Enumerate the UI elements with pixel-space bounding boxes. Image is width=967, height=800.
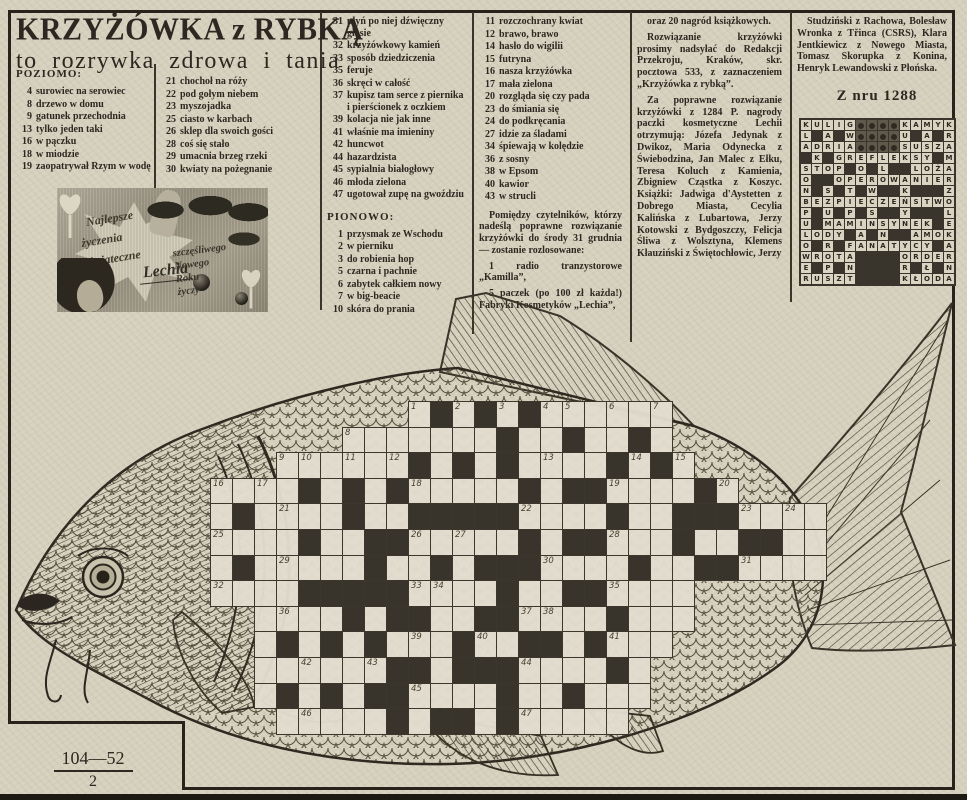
solved-cell-letter: Z: [944, 186, 954, 196]
grid-cell: [628, 478, 651, 505]
grid-cell: [584, 555, 607, 582]
solved-cell-black: [812, 263, 822, 273]
grid-cell-black: [562, 529, 585, 556]
solved-cell-letter: E: [856, 197, 866, 207]
solved-cell-letter: W: [845, 131, 855, 141]
grid-cell-number: 25: [213, 530, 224, 540]
grid-cell: [672, 478, 695, 505]
solved-cell-letter: M: [944, 153, 954, 163]
solved-cell-letter: A: [944, 274, 954, 284]
solved-cell-letter: A: [922, 131, 932, 141]
grid-cell-black: [364, 580, 387, 607]
grid-cell-number: 21: [279, 504, 290, 514]
grid-cell: [430, 427, 453, 454]
grid-cell: [606, 427, 629, 454]
grid-cell-number: 17: [257, 479, 268, 489]
grid-cell-black: [540, 631, 563, 658]
grid-cell: 14: [628, 452, 651, 479]
grid-cell-black: [364, 555, 387, 582]
grid-cell: 26: [408, 529, 431, 556]
solved-cell-black: [911, 208, 921, 218]
solved-cell-letter: A: [823, 131, 833, 141]
grid-cell: [298, 683, 321, 710]
grid-cell: [430, 657, 453, 684]
solved-cell-black: [867, 263, 877, 273]
grid-cell-number: 15: [675, 453, 686, 463]
grid-cell-black: [232, 555, 255, 582]
solved-cell-letter: A: [878, 241, 888, 251]
grid-cell-black: [760, 529, 783, 556]
grid-cell: [650, 478, 673, 505]
grid-cell: [584, 657, 607, 684]
solved-cell-black: [867, 252, 877, 262]
grid-cell: [320, 708, 343, 735]
solved-cell-letter: D: [933, 274, 943, 284]
grid-cell-black: [342, 580, 365, 607]
solved-cell-letter: U: [900, 131, 910, 141]
solved-cell-letter: K: [900, 153, 910, 163]
solved-cell-black: [922, 208, 932, 218]
grid-cell: [562, 708, 585, 735]
solved-cell-black: [856, 263, 866, 273]
solved-cell-letter: S: [867, 208, 877, 218]
solved-cell-black: [834, 208, 844, 218]
grid-cell-number: 23: [741, 504, 752, 514]
grid-cell-number: 32: [213, 581, 224, 591]
solved-cell-letter: N: [801, 186, 811, 196]
solved-cell-letter: U: [911, 142, 921, 152]
grid-cell-number: 45: [411, 684, 422, 694]
solved-cell-black: [878, 274, 888, 284]
solved-cell-black: [933, 153, 943, 163]
solved-cell-letter: E: [856, 175, 866, 185]
solved-cell-black: [933, 241, 943, 251]
solved-cell-letter: R: [823, 241, 833, 251]
grid-cell: [562, 503, 585, 530]
grid-cell: [276, 708, 299, 735]
solved-cell-black: [911, 186, 921, 196]
grid-cell: [584, 606, 607, 633]
grid-cell: 8: [342, 427, 365, 454]
solved-cell-letter: R: [911, 252, 921, 262]
solved-cell-letter: E: [801, 263, 811, 273]
solved-cell-letter: O: [823, 252, 833, 262]
grid-cell: [540, 683, 563, 710]
solved-cell-letter: L: [944, 208, 954, 218]
solved-cell-letter: U: [823, 208, 833, 218]
grid-cell-number: 40: [477, 632, 488, 642]
grid-cell: 18: [408, 478, 431, 505]
solved-cell-black: [856, 186, 866, 196]
grid-cell-number: 5: [565, 402, 570, 412]
grid-cell: [298, 631, 321, 658]
solved-cell-letter: F: [845, 241, 855, 251]
solved-cell-letter: S: [823, 274, 833, 284]
grid-cell: [496, 529, 519, 556]
solved-cell-letter: R: [812, 252, 822, 262]
solved-cell-letter: E: [889, 153, 899, 163]
grid-cell: 40: [474, 631, 497, 658]
solved-cell-photo: [878, 120, 888, 130]
solved-cell-letter: A: [944, 142, 954, 152]
grid-cell: 47: [518, 708, 541, 735]
grid-cell: [584, 452, 607, 479]
grid-cell-black: [672, 529, 695, 556]
grid-cell-number: 13: [543, 453, 554, 463]
grid-cell-number: 42: [301, 658, 312, 668]
solved-cell-letter: Ż: [933, 164, 943, 174]
solved-cell-black: [856, 274, 866, 284]
grid-cell: [320, 606, 343, 633]
grid-cell: [320, 452, 343, 479]
grid-cell: 46: [298, 708, 321, 735]
grid-cell: [430, 606, 453, 633]
solved-cell-letter: T: [845, 186, 855, 196]
grid-cell: [210, 555, 233, 582]
solved-cell-letter: E: [933, 175, 943, 185]
grid-cell: 17: [254, 478, 277, 505]
grid-cell: 35: [606, 580, 629, 607]
grid-cell-number: 10: [301, 453, 312, 463]
solved-cell-black: [889, 186, 899, 196]
solved-cell-letter: O: [856, 164, 866, 174]
grid-cell: [474, 580, 497, 607]
grid-cell-black: [496, 503, 519, 530]
grid-cell: [254, 555, 277, 582]
solved-cell-letter: Y: [889, 219, 899, 229]
grid-cell: [782, 529, 805, 556]
grid-cell-black: [496, 683, 519, 710]
grid-cell: [474, 452, 497, 479]
grid-cell: [210, 503, 233, 530]
solved-cell-letter: R: [867, 175, 877, 185]
solved-cell-letter: A: [834, 219, 844, 229]
grid-cell-black: [408, 503, 431, 530]
solved-cell-photo: [889, 142, 899, 152]
solved-cell-letter: N: [867, 219, 877, 229]
solved-cell-letter: L: [801, 131, 811, 141]
grid-cell-black: [672, 503, 695, 530]
solved-cell-black: [867, 230, 877, 240]
grid-cell: 24: [782, 503, 805, 530]
solved-cell-letter: A: [845, 142, 855, 152]
solved-cell-letter: W: [801, 252, 811, 262]
grid-cell: 43: [364, 657, 387, 684]
grid-cell-black: [320, 683, 343, 710]
grid-cell: [540, 478, 563, 505]
grid-cell: [562, 606, 585, 633]
grid-cell: 20: [716, 478, 739, 505]
solved-cell-letter: B: [801, 197, 811, 207]
solved-cell-letter: E: [812, 197, 822, 207]
grid-cell-black: [606, 657, 629, 684]
grid-cell: [496, 478, 519, 505]
solved-cell-letter: R: [944, 252, 954, 262]
grid-cell: [540, 708, 563, 735]
grid-cell: 19: [606, 478, 629, 505]
grid-cell: 32: [210, 580, 233, 607]
grid-cell: [562, 631, 585, 658]
grid-cell-black: [694, 555, 717, 582]
solved-cell-letter: M: [922, 120, 932, 130]
solved-cell-photo: [867, 142, 877, 152]
grid-cell: [232, 478, 255, 505]
grid-cell: [254, 631, 277, 658]
grid-cell: [518, 427, 541, 454]
grid-cell: [650, 631, 673, 658]
grid-cell: 4: [540, 401, 563, 428]
grid-cell: 9: [276, 452, 299, 479]
grid-cell: [584, 503, 607, 530]
grid-cell-black: [496, 657, 519, 684]
solved-cell-black: [933, 208, 943, 218]
solved-cell-letter: Z: [933, 142, 943, 152]
solved-cell-black: [878, 252, 888, 262]
solved-cell-letter: F: [867, 153, 877, 163]
solved-cell-black: [867, 164, 877, 174]
solved-cell-letter: W: [889, 175, 899, 185]
grid-cell: [804, 503, 827, 530]
grid-cell-number: 46: [301, 709, 312, 719]
grid-cell: [606, 683, 629, 710]
solved-cell-black: [845, 164, 855, 174]
grid-cell: [254, 657, 277, 684]
solved-cell-letter: E: [911, 219, 921, 229]
grid-cell: [562, 657, 585, 684]
grid-cell: [496, 631, 519, 658]
grid-cell-number: 18: [411, 479, 422, 489]
grid-cell: 27: [452, 529, 475, 556]
grid-cell: [606, 555, 629, 582]
solved-cell-black: [834, 131, 844, 141]
grid-cell-black: [562, 683, 585, 710]
grid-cell: [474, 478, 497, 505]
grid-cell-black: [408, 452, 431, 479]
grid-cell-black: [738, 529, 761, 556]
grid-cell-black: [650, 452, 673, 479]
solved-cell-letter: S: [878, 219, 888, 229]
grid-cell-number: 41: [609, 632, 620, 642]
grid-cell: [628, 580, 651, 607]
grid-cell: 29: [276, 555, 299, 582]
grid-cell: 31: [738, 555, 761, 582]
grid-cell-black: [342, 478, 365, 505]
grid-cell: 28: [606, 529, 629, 556]
solved-cell-black: [834, 241, 844, 251]
grid-cell: [342, 657, 365, 684]
solved-cell-letter: S: [823, 186, 833, 196]
solved-cell-black: [933, 186, 943, 196]
solved-cell-letter: W: [933, 197, 943, 207]
grid-cell: [474, 683, 497, 710]
solved-cell-letter: A: [900, 175, 910, 185]
solved-cell-letter: L: [911, 164, 921, 174]
grid-cell: [452, 580, 475, 607]
grid-cell-number: 33: [411, 581, 422, 591]
grid-cell: [540, 529, 563, 556]
solved-cell-letter: K: [900, 274, 910, 284]
solved-cell-letter: D: [823, 230, 833, 240]
grid-cell: [452, 478, 475, 505]
grid-cell-black: [562, 427, 585, 454]
grid-cell: [364, 708, 387, 735]
solved-cell-letter: P: [834, 197, 844, 207]
solved-cell-letter: L: [823, 120, 833, 130]
grid-cell: 23: [738, 503, 761, 530]
grid-cell-black: [430, 503, 453, 530]
grid-cell: [364, 452, 387, 479]
grid-cell-number: 11: [345, 453, 356, 463]
grid-cell-number: 34: [433, 581, 444, 591]
grid-cell-number: 16: [213, 479, 224, 489]
solved-cell-letter: C: [867, 197, 877, 207]
grid-cell-black: [584, 631, 607, 658]
grid-cell-black: [364, 529, 387, 556]
solved-cell-letter: R: [944, 131, 954, 141]
solved-cell-black: [823, 175, 833, 185]
grid-cell: [342, 708, 365, 735]
grid-cell: [804, 555, 827, 582]
solved-cell-letter: S: [922, 142, 932, 152]
grid-cell-black: [694, 503, 717, 530]
grid-cell: [540, 657, 563, 684]
solved-cell-letter: N: [944, 263, 954, 273]
solved-cell-letter: A: [845, 252, 855, 262]
grid-cell: [474, 708, 497, 735]
grid-cell: [518, 580, 541, 607]
grid-cell: [276, 657, 299, 684]
solved-cell-letter: P: [845, 175, 855, 185]
solved-cell-letter: Y: [933, 120, 943, 130]
grid-cell: [386, 427, 409, 454]
solved-cell-letter: K: [812, 153, 822, 163]
grid-cell: 25: [210, 529, 233, 556]
solved-cell-black: [867, 274, 877, 284]
grid-cell-number: 14: [631, 453, 642, 463]
grid-cell: [672, 580, 695, 607]
grid-cell: 22: [518, 503, 541, 530]
grid-cell-black: [408, 606, 431, 633]
solved-cell-black: [900, 230, 910, 240]
solved-cell-letter: O: [922, 164, 932, 174]
solved-cell-black: [889, 252, 899, 262]
solved-cell-letter: P: [834, 164, 844, 174]
solved-cell-letter: O: [801, 175, 811, 185]
solved-cell-black: [889, 263, 899, 273]
grid-cell-black: [474, 401, 497, 428]
solved-cell-letter: P: [801, 208, 811, 218]
grid-cell-number: 28: [609, 530, 620, 540]
grid-cell-black: [386, 657, 409, 684]
grid-cell-black: [694, 478, 717, 505]
solved-cell-black: [878, 208, 888, 218]
solved-cell-black: [933, 131, 943, 141]
solved-cell-letter: G: [834, 153, 844, 163]
grid-cell: [320, 657, 343, 684]
grid-cell: 34: [430, 580, 453, 607]
grid-cell-number: 3: [499, 402, 504, 412]
grid-cell-black: [628, 427, 651, 454]
solved-cell-photo: [856, 142, 866, 152]
solved-cell-black: [812, 208, 822, 218]
solved-cell-letter: U: [801, 219, 811, 229]
grid-cell: 37: [518, 606, 541, 633]
solved-cell-letter: N: [878, 230, 888, 240]
grid-cell: [276, 529, 299, 556]
grid-cell-black: [276, 631, 299, 658]
grid-cell-black: [496, 580, 519, 607]
grid-cell: [606, 708, 629, 735]
grid-cell-black: [562, 580, 585, 607]
solved-cell-black: [889, 208, 899, 218]
grid-cell: [232, 580, 255, 607]
grid-cell: [628, 683, 651, 710]
grid-cell-black: [606, 452, 629, 479]
grid-cell-black: [584, 580, 607, 607]
grid-cell: [518, 683, 541, 710]
solved-cell-letter: N: [911, 175, 921, 185]
grid-cell-number: 27: [455, 530, 466, 540]
christmas-bauble: [235, 292, 248, 305]
grid-cell: 21: [276, 503, 299, 530]
grid-cell: [254, 683, 277, 710]
grid-cell: [408, 555, 431, 582]
solved-cell-letter: A: [856, 241, 866, 251]
newspaper-page: KRZYŻÓWKA z RYBKĄ to rozrywka zdrowa i t…: [0, 0, 967, 800]
grid-cell: [254, 503, 277, 530]
grid-cell: 41: [606, 631, 629, 658]
grid-cell-black: [496, 427, 519, 454]
solved-cell-black: [856, 252, 866, 262]
solved-cell-photo: [889, 120, 899, 130]
solved-cell-letter: Y: [900, 208, 910, 218]
grid-cell-black: [518, 478, 541, 505]
solved-cell-letter: Y: [834, 230, 844, 240]
solved-cell-letter: O: [823, 164, 833, 174]
grid-cell: [650, 555, 673, 582]
grid-cell-black: [518, 529, 541, 556]
grid-cell-number: 26: [411, 530, 422, 540]
grid-cell: [584, 683, 607, 710]
solved-cell-letter: Y: [900, 241, 910, 251]
grid-cell: [474, 529, 497, 556]
solved-cell-letter: C: [911, 241, 921, 251]
solved-cell-black: [933, 219, 943, 229]
solved-cell-letter: O: [834, 175, 844, 185]
grid-cell-number: 47: [521, 709, 532, 719]
grid-cell: [342, 631, 365, 658]
grid-cell: 44: [518, 657, 541, 684]
solved-cell-black: [834, 186, 844, 196]
solved-cell-photo: [878, 142, 888, 152]
grid-cell: 42: [298, 657, 321, 684]
grid-cell-black: [320, 580, 343, 607]
grid-cell-number: 31: [741, 556, 752, 566]
solved-cell-letter: L: [878, 164, 888, 174]
grid-cell: [364, 478, 387, 505]
solved-cell-photo: [867, 120, 877, 130]
grid-cell-black: [496, 708, 519, 735]
grid-cell: [650, 606, 673, 633]
grid-cell: [804, 529, 827, 556]
solved-cell-letter: R: [823, 142, 833, 152]
grid-cell-black: [430, 555, 453, 582]
solved-cell-letter: A: [856, 230, 866, 240]
solved-cell-letter: Ń: [900, 197, 910, 207]
solved-cell-photo: [856, 131, 866, 141]
grid-cell: [276, 478, 299, 505]
grid-cell: [342, 555, 365, 582]
